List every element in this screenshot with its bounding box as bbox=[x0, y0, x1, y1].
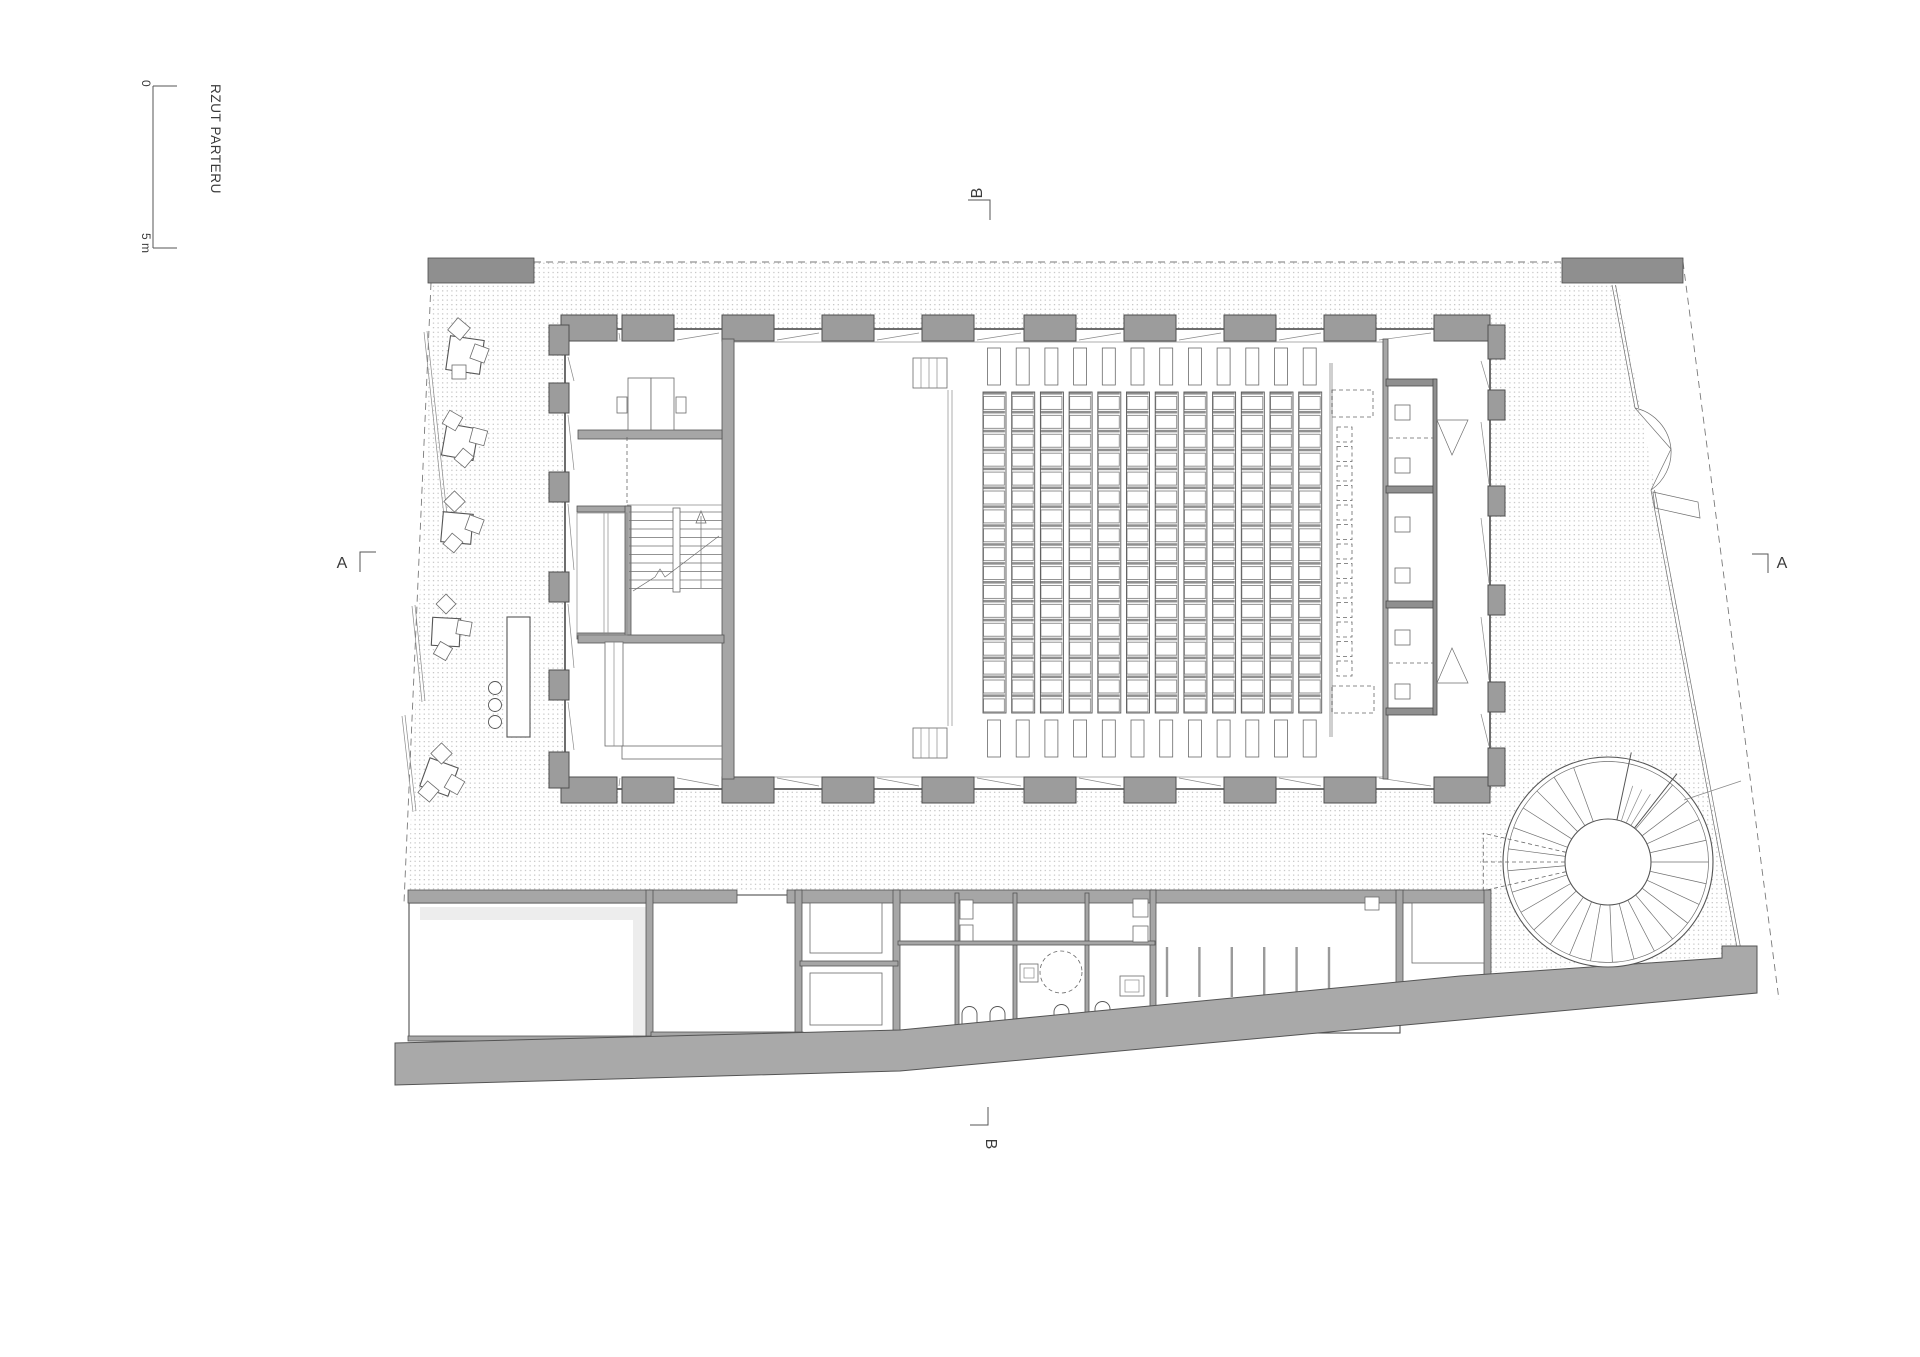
section-cut-corner-icon bbox=[360, 552, 376, 572]
planter-icon bbox=[489, 682, 502, 695]
section-cut-corner-icon bbox=[1752, 554, 1768, 573]
section-marker-a-right: A bbox=[1752, 554, 1788, 573]
annex-room-hall bbox=[651, 895, 801, 1035]
bench bbox=[507, 617, 530, 737]
chair-icon bbox=[676, 397, 686, 413]
chair-icon bbox=[469, 427, 487, 445]
scale-end-label: 5 m bbox=[139, 233, 153, 253]
sink-icon bbox=[1120, 976, 1144, 996]
planter-icon bbox=[489, 716, 502, 729]
sink-icon bbox=[1020, 964, 1038, 982]
scale-start-label: 0 bbox=[139, 80, 153, 87]
existing-wall-top-right bbox=[1562, 258, 1683, 283]
drawing-title: RZUT PARTERU bbox=[208, 84, 223, 194]
chair-icon bbox=[456, 620, 472, 636]
planter-icon bbox=[489, 699, 502, 712]
main-building bbox=[549, 315, 1505, 803]
section-marker-b-top: B bbox=[968, 188, 990, 220]
chair-icon bbox=[617, 397, 627, 413]
altar-platform-edge bbox=[1329, 363, 1333, 737]
svg-text:A: A bbox=[1777, 555, 1788, 572]
scale-bar: 0 5 m bbox=[139, 80, 177, 253]
drawing-sheet: 0 5 m RZUT PARTERU B B A A bbox=[0, 0, 1920, 1357]
svg-text:B: B bbox=[969, 188, 986, 199]
tech-equipment bbox=[1412, 903, 1484, 963]
svg-text:B: B bbox=[982, 1139, 999, 1150]
floor-plan-canvas: 0 5 m RZUT PARTERU B B A A bbox=[0, 0, 1920, 1357]
section-marker-a-left: A bbox=[337, 552, 376, 572]
existing-wall-top-left bbox=[428, 258, 534, 283]
section-cut-corner-icon bbox=[970, 1107, 988, 1125]
section-cut-corner-icon bbox=[968, 200, 990, 220]
svg-text:A: A bbox=[337, 555, 348, 572]
chair-icon bbox=[452, 365, 466, 379]
annex-room-garage bbox=[409, 903, 651, 1038]
section-marker-b-bottom: B bbox=[970, 1107, 999, 1149]
